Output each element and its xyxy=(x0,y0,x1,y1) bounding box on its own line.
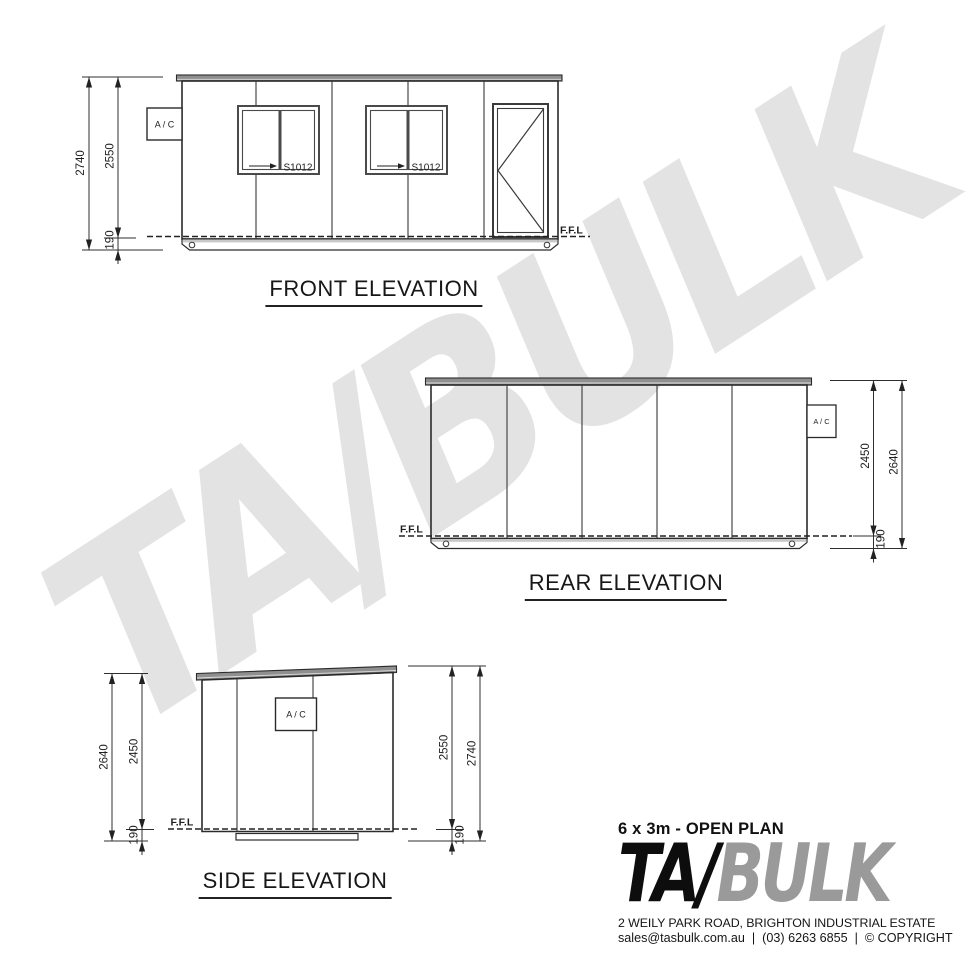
front-ac-label: A / C xyxy=(155,120,175,130)
rear-dimensions: 2450 2640 190 xyxy=(830,381,907,563)
rear-base-strip xyxy=(432,539,806,542)
rear-roof xyxy=(426,378,812,385)
front-base xyxy=(182,239,558,250)
side-left-dim-wall: 2450 xyxy=(129,739,141,765)
side-elevation-title: SIDE ELEVATION xyxy=(199,868,392,899)
front-window-2-label: S1012 xyxy=(412,163,441,174)
side-dimensions-left: 2640 2450 190 xyxy=(99,674,155,856)
rear-ffl: F.F.L xyxy=(399,524,852,537)
side-ffl: F.F.L xyxy=(168,817,417,830)
copyright-text: © COPYRIGHT xyxy=(865,931,953,945)
front-dim-wall: 2550 xyxy=(105,143,117,169)
front-ac-unit: A / C xyxy=(147,108,182,140)
front-window-1-label: S1012 xyxy=(284,163,313,174)
rear-wall xyxy=(431,385,807,539)
front-tiedown-right xyxy=(544,242,550,248)
front-dim-extensions xyxy=(82,77,163,250)
rear-dim-floor: 190 xyxy=(876,529,888,548)
front-door-frame xyxy=(493,104,548,237)
front-window-1: S1012 xyxy=(238,106,319,174)
logo-tas: TA xyxy=(618,827,697,920)
side-left-dim-overall: 2640 xyxy=(99,744,111,770)
front-elevation: A / C S1012 S1012 xyxy=(75,75,590,264)
rear-ac-unit: A / C xyxy=(807,405,836,438)
contact-line: sales@tasbulk.com.au|(03) 6263 6855|© CO… xyxy=(618,931,948,945)
side-right-dim-overall: 2740 xyxy=(467,741,479,767)
rear-tiedown-right xyxy=(789,541,795,547)
drawing-sheet: TA/BULK A / C xyxy=(0,0,980,980)
separator: | xyxy=(855,931,858,945)
logo-bulk: BULK xyxy=(717,827,890,920)
side-skid xyxy=(236,834,358,841)
front-door xyxy=(493,104,548,237)
front-dim-floor: 190 xyxy=(105,230,117,249)
rear-elevation: A / C F.F.L 2450 2640 190 xyxy=(399,378,907,563)
front-elevation-title: FRONT ELEVATION xyxy=(265,276,482,307)
front-ffl-label: F.F.L xyxy=(560,225,583,237)
rear-dim-overall: 2640 xyxy=(889,449,901,475)
rear-ac-label: A / C xyxy=(813,417,830,426)
front-base-strip xyxy=(183,240,557,243)
rear-elevation-title: REAR ELEVATION xyxy=(525,570,727,601)
rear-panel-lines xyxy=(507,385,732,539)
side-left-dim-floor: 190 xyxy=(129,825,141,844)
front-dim-overall: 2740 xyxy=(75,150,87,176)
front-window-2: S1012 xyxy=(366,106,447,174)
side-wall xyxy=(202,673,393,832)
rear-base xyxy=(431,539,807,549)
side-right-dim-wall: 2550 xyxy=(439,735,451,761)
side-dimensions-right: 2550 2740 190 xyxy=(408,666,486,855)
side-right-dim-floor: 190 xyxy=(455,825,467,844)
rear-ffl-label: F.F.L xyxy=(400,524,423,536)
tasbulk-logo: TA/BULK xyxy=(618,835,875,913)
rear-dim-wall: 2450 xyxy=(860,443,872,469)
side-elevation: A / C F.F.L 2640 2450 190 xyxy=(99,666,487,855)
side-ac-unit: A / C xyxy=(276,698,317,731)
side-ffl-label: F.F.L xyxy=(171,817,194,829)
title-block: 6 x 3m - OPEN PLAN TA/BULK 2 WEILY PARK … xyxy=(618,820,948,945)
front-roof xyxy=(177,75,563,81)
phone-number: (03) 6263 6855 xyxy=(762,931,847,945)
separator: | xyxy=(752,931,755,945)
front-tiedown-left xyxy=(189,242,195,248)
email-text: sales@tasbulk.com.au xyxy=(618,931,745,945)
rear-tiedown-left xyxy=(443,541,449,547)
side-ac-label: A / C xyxy=(286,710,306,720)
logo-s-slash: / xyxy=(697,827,716,920)
